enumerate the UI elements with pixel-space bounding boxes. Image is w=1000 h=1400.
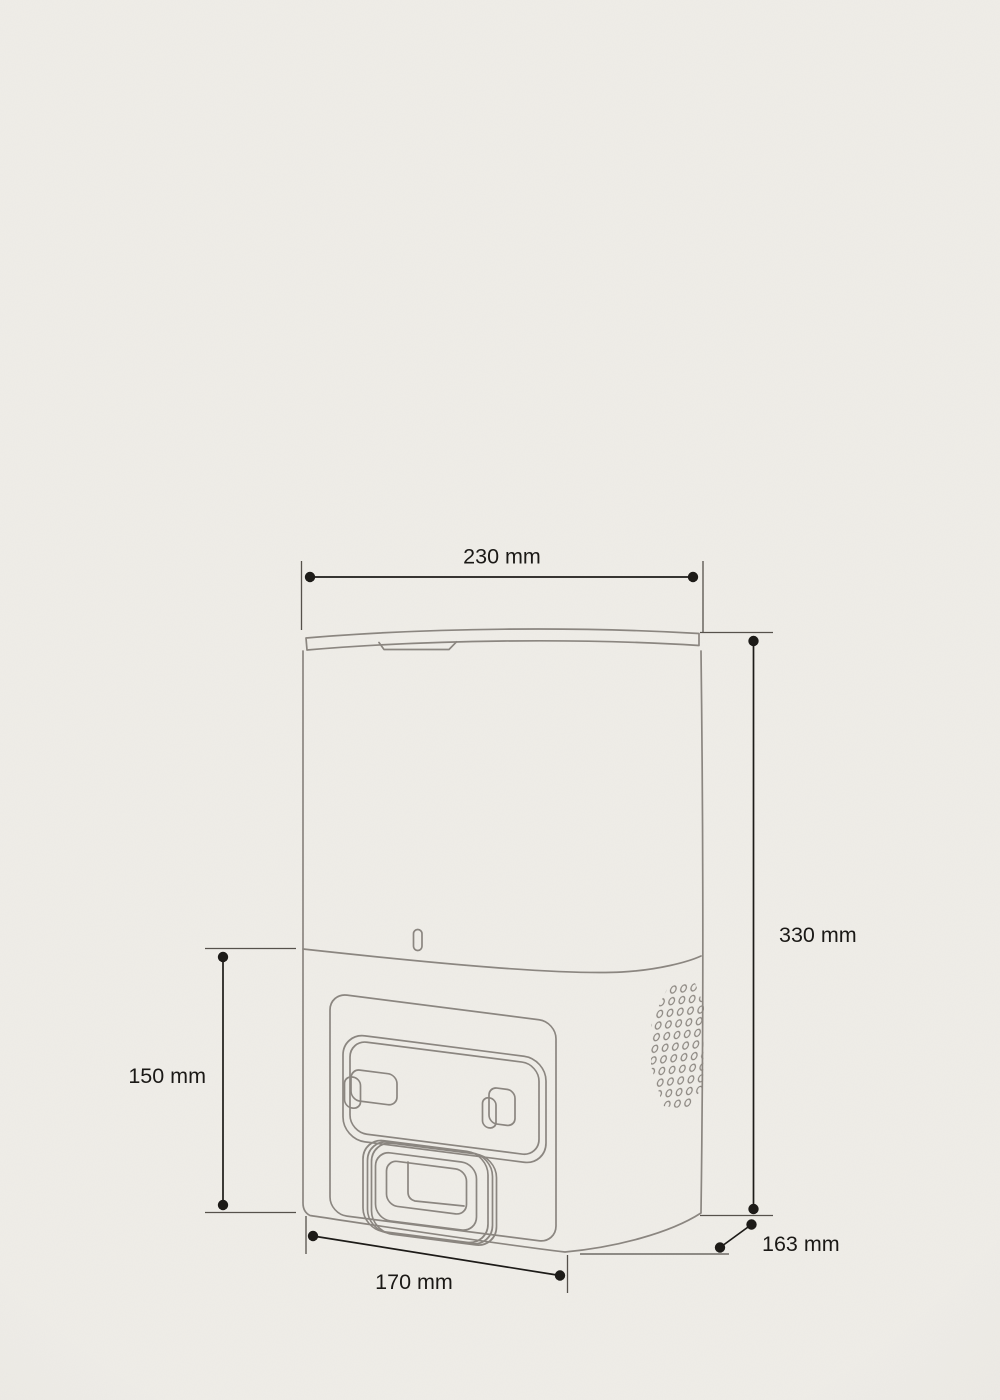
paper-grain [0, 0, 1000, 1400]
dimension-label-height: 330 mm [779, 923, 857, 947]
dimension-drawing: 230 mm 330 mm 150 mm 170 mm 163 mm [0, 0, 1000, 1400]
dimension-label-base-width: 170 mm [375, 1270, 453, 1294]
product-dimension-image: 230 mm 330 mm 150 mm 170 mm 163 mm [0, 0, 1000, 1400]
dimension-label-top-width: 230 mm [463, 545, 541, 569]
dimension-label-base-depth: 163 mm [762, 1232, 840, 1256]
dimension-label-base-height: 150 mm [128, 1064, 206, 1088]
